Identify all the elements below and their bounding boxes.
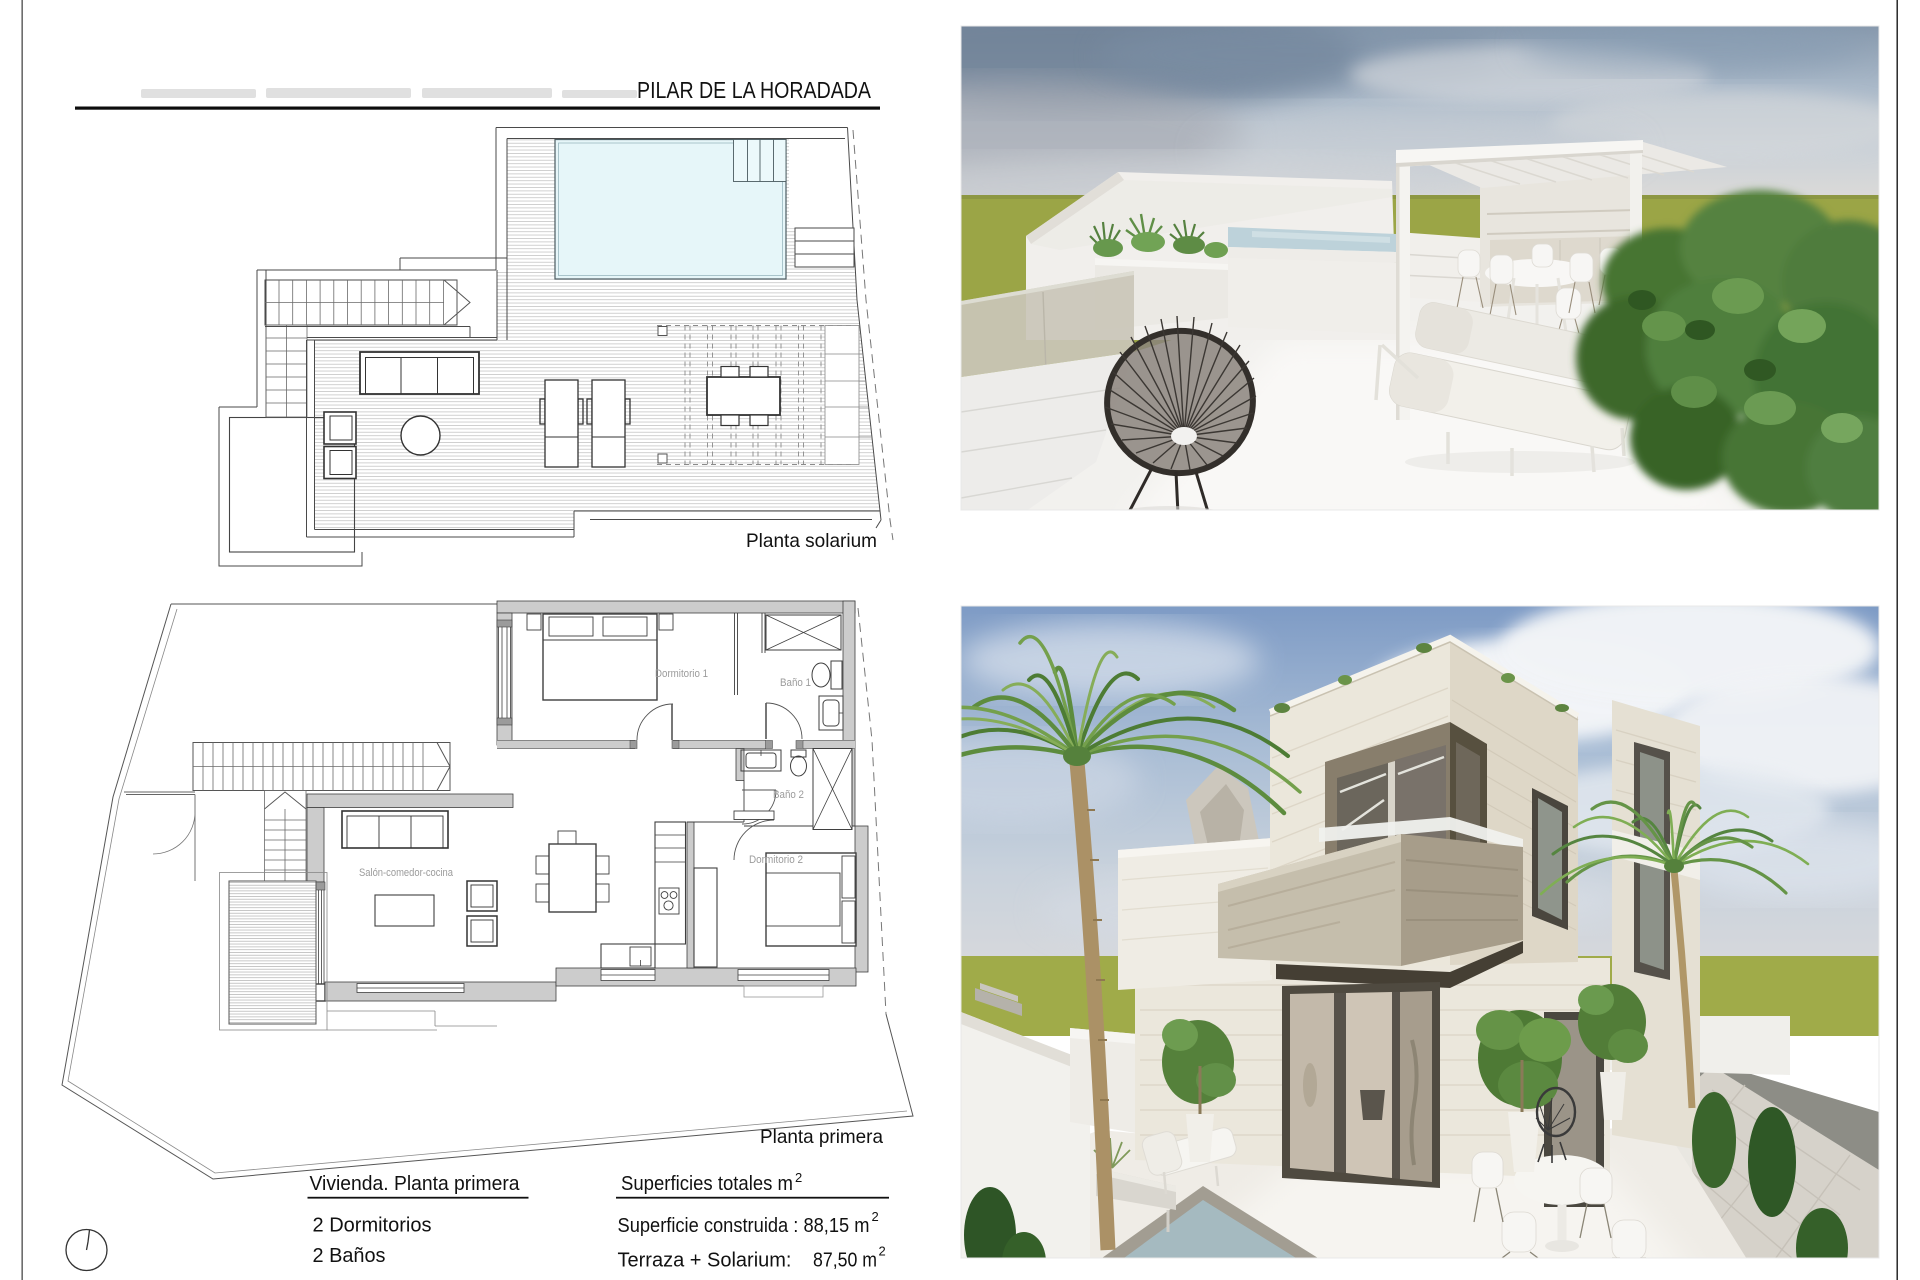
svg-text:Planta solarium: Planta solarium — [746, 530, 877, 552]
svg-text:PILAR DE LA HORADADA: PILAR DE LA HORADADA — [637, 77, 872, 103]
svg-text:2: 2 — [795, 1170, 802, 1185]
svg-text:Dormitorio 1: Dormitorio 1 — [655, 668, 708, 680]
svg-text:2 Dormitorios: 2 Dormitorios — [313, 1214, 432, 1236]
svg-text:2 Baños: 2 Baños — [313, 1245, 386, 1267]
svg-text:Salón-comedor-cocina: Salón-comedor-cocina — [359, 867, 454, 879]
svg-text:Baño 2: Baño 2 — [773, 789, 804, 801]
svg-text:Baño 1: Baño 1 — [780, 677, 811, 689]
svg-text:Planta primera: Planta primera — [760, 1126, 883, 1148]
svg-text:2: 2 — [879, 1244, 886, 1259]
svg-text:2: 2 — [872, 1209, 879, 1224]
svg-text:87,50 m: 87,50 m — [813, 1249, 877, 1271]
svg-text:Superficie construida : 88,15: Superficie construida : 88,15 m — [618, 1215, 870, 1237]
svg-text:Terraza + Solarium:: Terraza + Solarium: — [618, 1249, 792, 1271]
svg-text:Dormitorio 2: Dormitorio 2 — [749, 854, 803, 866]
svg-text:Superficies totales m: Superficies totales m — [621, 1173, 793, 1195]
svg-text:Vivienda. Planta primera: Vivienda. Planta primera — [310, 1173, 521, 1195]
